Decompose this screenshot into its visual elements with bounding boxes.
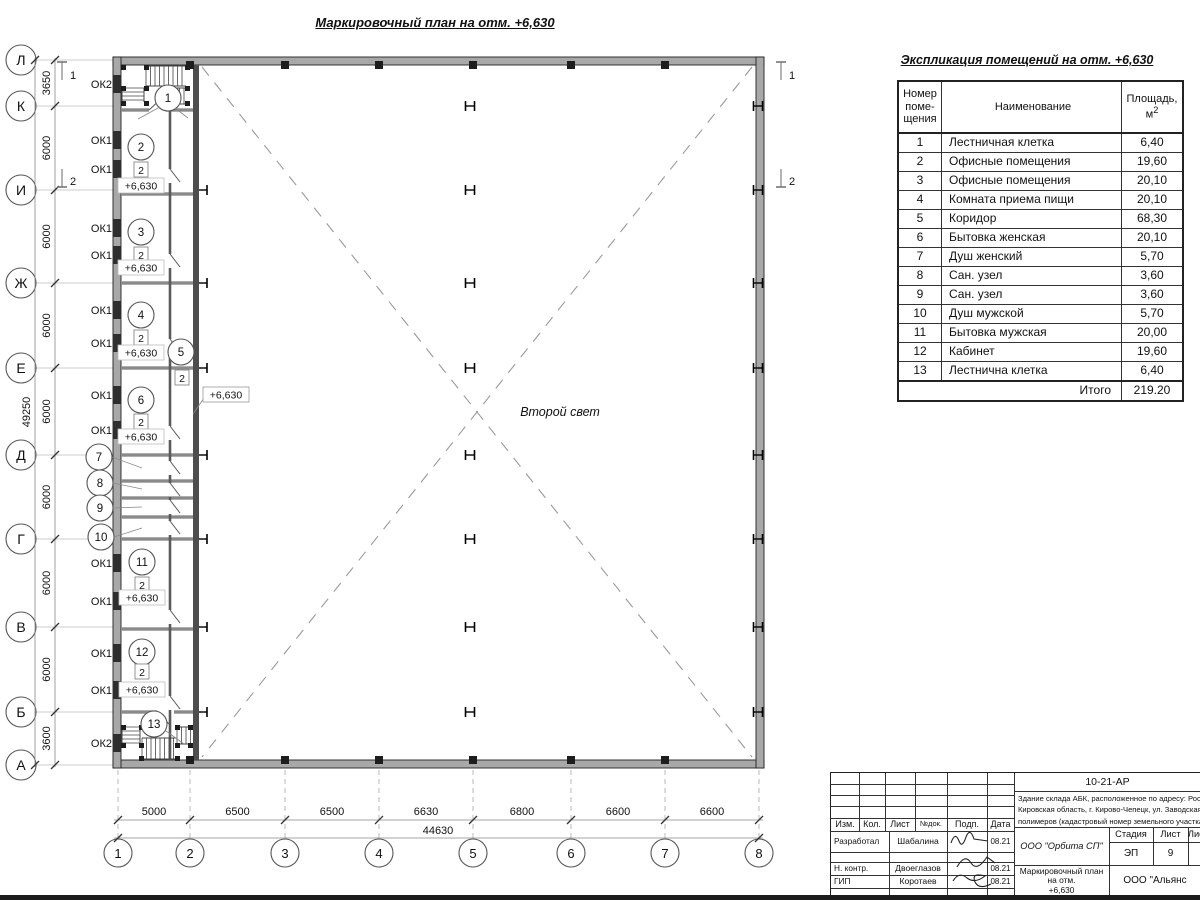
schedule-row: 2Офисные помещения19,60 bbox=[898, 153, 1183, 172]
schedule-cell-name: Сан. узел bbox=[942, 267, 1122, 286]
schedule-cell-area: 20,10 bbox=[1122, 191, 1184, 210]
window-tag: ОК1 bbox=[91, 305, 112, 317]
schedule-cell-num: 10 bbox=[898, 305, 942, 324]
schedule-cell-area: 5,70 bbox=[1122, 248, 1184, 267]
window-tag: ОК1 bbox=[91, 164, 112, 176]
tb-sheets-value: 1 bbox=[1188, 842, 1200, 865]
row-dimension-label: 6000 bbox=[41, 571, 53, 595]
window-tag: ОК1 bbox=[91, 596, 112, 608]
stair-column-mark bbox=[175, 756, 180, 761]
stair-column-mark bbox=[121, 101, 126, 106]
schedule-cell-num: 4 bbox=[898, 191, 942, 210]
row-axis-label: К bbox=[17, 98, 26, 114]
col-dimension-label: 6600 bbox=[606, 806, 630, 818]
room-number: 7 bbox=[96, 452, 102, 464]
window-tag: ОК1 bbox=[91, 338, 112, 350]
schedule-cell-area: 6,40 bbox=[1122, 133, 1184, 153]
schedule-cell-num: 2 bbox=[898, 153, 942, 172]
window-tag: ОК1 bbox=[91, 558, 112, 570]
window-tag: ОК1 bbox=[91, 390, 112, 402]
schedule-cell-name: Лестнична клетка bbox=[942, 362, 1122, 382]
tb-sheet-value: 9 bbox=[1153, 842, 1188, 865]
schedule-cell-name: Лестничная клетка bbox=[942, 133, 1122, 153]
window-opening bbox=[114, 160, 121, 178]
tb-name-ncontr: Двоеглазов bbox=[889, 862, 947, 875]
room-number: 13 bbox=[148, 719, 161, 731]
tb-stage-label: Стадия bbox=[1109, 827, 1153, 842]
col-total-dimension: 44630 bbox=[423, 825, 454, 837]
section-mark: 1 bbox=[789, 70, 795, 82]
schedule-cell-num: 9 bbox=[898, 286, 942, 305]
col-dimension-label: 5000 bbox=[142, 806, 166, 818]
col-dimension-label: 6500 bbox=[320, 806, 344, 818]
partition-wall bbox=[121, 627, 193, 630]
room-number: 1 bbox=[165, 93, 171, 105]
schedule-cell-num: 8 bbox=[898, 267, 942, 286]
schedule-cell-area: 20,10 bbox=[1122, 172, 1184, 191]
floor-type-mark: 2 bbox=[139, 667, 145, 679]
door-leaf bbox=[170, 696, 180, 709]
col-axis-label: 6 bbox=[567, 846, 574, 861]
tb-sheet-label: Лист bbox=[1153, 827, 1188, 842]
row-axis-label: И bbox=[16, 182, 26, 198]
schedule-cell-area: 3,60 bbox=[1122, 286, 1184, 305]
window-tag: ОК1 bbox=[91, 135, 112, 147]
row-dimension-label: 3650 bbox=[41, 71, 53, 95]
tb-stage-value: ЭП bbox=[1109, 842, 1153, 865]
stair-column-mark bbox=[175, 725, 180, 730]
schedule-cell-name: Кабинет bbox=[942, 343, 1122, 362]
window-tag: ОК1 bbox=[91, 685, 112, 697]
schedule-title: Экспликация помещений на отм. +6,630 bbox=[895, 53, 1159, 67]
partition-wall bbox=[121, 453, 193, 456]
partition-wall bbox=[121, 366, 193, 369]
door-leaf bbox=[170, 610, 180, 623]
door-leaf bbox=[170, 169, 180, 182]
stair-column-mark bbox=[121, 86, 126, 91]
schedule-row: 10Душ мужской5,70 bbox=[898, 305, 1183, 324]
tb-description-line3: полимеров (кадастровый номер земельного … bbox=[1018, 816, 1200, 827]
stair-column-mark bbox=[175, 743, 180, 748]
partition-wall bbox=[121, 515, 193, 518]
tb-org: ООО "Орбита СП" bbox=[1014, 827, 1109, 865]
schedule-cell-num: 12 bbox=[898, 343, 942, 362]
row-axis-label: А bbox=[16, 757, 26, 773]
schedule-row: 13Лестнична клетка6,40 bbox=[898, 362, 1183, 382]
column-mark bbox=[661, 756, 669, 764]
column-mark bbox=[661, 61, 669, 69]
door-leaf bbox=[170, 500, 180, 513]
schedule-col-number: Номер поме- щения bbox=[898, 81, 942, 133]
window-tag: ОК1 bbox=[91, 223, 112, 235]
tb-description-line2: Кировская область, г. Кирово-Чепецк, ул.… bbox=[1018, 804, 1200, 815]
tb-org2: ООО "Альянс bbox=[1109, 865, 1200, 897]
elevation-label: +6,630 bbox=[210, 390, 243, 402]
window-opening bbox=[114, 734, 121, 752]
row-total-dimension: 49250 bbox=[21, 397, 33, 428]
section-mark: 2 bbox=[70, 176, 76, 188]
tb-name-gip: Коротаев bbox=[889, 875, 947, 888]
schedule-cell-name: Комната приема пищи bbox=[942, 191, 1122, 210]
room-number: 2 bbox=[138, 142, 144, 154]
col-dimension-label: 6500 bbox=[225, 806, 249, 818]
partition-wall bbox=[121, 479, 193, 482]
room-number: 10 bbox=[95, 532, 108, 544]
schedule-col-area: Площадь, м2 bbox=[1122, 81, 1184, 133]
stair-column-mark bbox=[188, 743, 193, 748]
stair-column-mark bbox=[144, 86, 149, 91]
col-axis-label: 3 bbox=[281, 846, 288, 861]
schedule-col-name: Наименование bbox=[942, 81, 1122, 133]
stair-column-mark bbox=[185, 86, 190, 91]
elevation-label: +6,630 bbox=[125, 432, 158, 444]
schedule-cell-name: Офисные помещения bbox=[942, 172, 1122, 191]
stair-column-mark bbox=[139, 743, 144, 748]
schedule-cell-area: 19,60 bbox=[1122, 343, 1184, 362]
schedule-cell-num: 5 bbox=[898, 210, 942, 229]
schedule-row: 4Комната приема пищи20,10 bbox=[898, 191, 1183, 210]
schedule-total-label: Итого bbox=[898, 381, 1122, 401]
room-number: 5 bbox=[178, 347, 184, 359]
row-axis-label: Б bbox=[16, 704, 25, 720]
tb-col-list: Лист bbox=[885, 818, 915, 831]
schedule-total-value: 219.20 bbox=[1122, 381, 1184, 401]
row-dimension-label: 6000 bbox=[41, 485, 53, 509]
schedule-cell-area: 20,00 bbox=[1122, 324, 1184, 343]
room-number: 4 bbox=[138, 310, 145, 322]
tb-sheets-label: Листов bbox=[1188, 827, 1200, 842]
signature-strokes bbox=[943, 827, 1015, 893]
col-dimension-label: 6600 bbox=[700, 806, 724, 818]
schedule-total-row: Итого 219.20 bbox=[898, 381, 1183, 401]
room-schedule-table: Номер поме- щения Наименование Площадь, … bbox=[897, 80, 1184, 402]
schedule-cell-area: 6,40 bbox=[1122, 362, 1184, 382]
room-number: 8 bbox=[97, 478, 103, 490]
column-mark bbox=[567, 756, 575, 764]
schedule-cell-num: 11 bbox=[898, 324, 942, 343]
stair-column-mark bbox=[139, 756, 144, 761]
room-number: 3 bbox=[138, 227, 144, 239]
row-dimension-label: 6000 bbox=[41, 313, 53, 337]
col-axis-label: 7 bbox=[661, 846, 668, 861]
schedule-row: 11Бытовка мужская20,00 bbox=[898, 324, 1183, 343]
stair-column-mark bbox=[185, 65, 190, 70]
row-dimension-label: 3600 bbox=[41, 726, 53, 750]
row-axis-label: Г bbox=[17, 531, 25, 547]
schedule-cell-area: 5,70 bbox=[1122, 305, 1184, 324]
partition-wall bbox=[121, 537, 193, 540]
schedule-cell-num: 1 bbox=[898, 133, 942, 153]
tb-description-line1: Здание склада АБК, расположенное по адре… bbox=[1018, 793, 1200, 804]
schedule-cell-num: 13 bbox=[898, 362, 942, 382]
schedule-cell-num: 6 bbox=[898, 229, 942, 248]
row-axis-label: Ж bbox=[15, 275, 28, 291]
schedule-cell-area: 20,10 bbox=[1122, 229, 1184, 248]
schedule-row: 1Лестничная клетка6,40 bbox=[898, 133, 1183, 153]
floor-type-mark: 2 bbox=[138, 417, 144, 429]
tb-col-kol: Кол. bbox=[859, 818, 885, 831]
schedule-cell-name: Бытовка мужская bbox=[942, 324, 1122, 343]
schedule-cell-num: 3 bbox=[898, 172, 942, 191]
door-leaf bbox=[170, 483, 180, 496]
stair-column-mark bbox=[121, 725, 126, 730]
drawing-sheet: Маркировочный план на отм. +6,630 ЛКИЖЕД… bbox=[0, 0, 1200, 900]
stair-column-mark bbox=[121, 65, 126, 70]
row-axis-label: В bbox=[16, 619, 25, 635]
column-mark bbox=[567, 61, 575, 69]
column-mark bbox=[375, 61, 383, 69]
partition-wall bbox=[121, 496, 193, 499]
window-opening bbox=[114, 131, 121, 149]
stair-column-mark bbox=[121, 743, 126, 748]
tb-description: Здание склада АБК, расположенное по адре… bbox=[1018, 793, 1200, 826]
door-leaf bbox=[170, 521, 180, 534]
window-opening bbox=[114, 301, 121, 319]
tb-drawing-title: Маркировочный план на отм. +6,630 bbox=[1014, 865, 1109, 897]
schedule-cell-name: Коридор bbox=[942, 210, 1122, 229]
window-opening bbox=[114, 554, 121, 572]
floor-type-mark: 2 bbox=[179, 373, 185, 385]
section-mark: 2 bbox=[789, 176, 795, 188]
schedule-cell-name: Душ женский bbox=[942, 248, 1122, 267]
elevation-label: +6,630 bbox=[125, 263, 158, 275]
elevation-label: +6,630 bbox=[126, 593, 159, 605]
schedule-row: 6Бытовка женская20,10 bbox=[898, 229, 1183, 248]
column-mark bbox=[469, 756, 477, 764]
row-dimension-label: 6000 bbox=[41, 136, 53, 160]
row-dimension-label: 6000 bbox=[41, 399, 53, 423]
schedule-cell-area: 3,60 bbox=[1122, 267, 1184, 286]
column-mark bbox=[469, 61, 477, 69]
window-tag: ОК1 bbox=[91, 250, 112, 262]
window-opening bbox=[114, 644, 121, 662]
window-opening bbox=[114, 219, 121, 237]
room-number: 6 bbox=[138, 395, 144, 407]
row-axis-label: Е bbox=[16, 360, 25, 376]
tb-drawing-title-line1: Маркировочный план на отм. bbox=[1014, 867, 1109, 886]
window-tag: ОК1 bbox=[91, 648, 112, 660]
row-dimension-label: 6000 bbox=[41, 224, 53, 248]
elevation-label: +6,630 bbox=[126, 685, 159, 697]
door-leaf bbox=[170, 254, 180, 267]
schedule-cell-name: Душ мужской bbox=[942, 305, 1122, 324]
col-axis-label: 5 bbox=[469, 846, 476, 861]
schedule-cell-name: Офисные помещения bbox=[942, 153, 1122, 172]
schedule-row: 9Сан. узел3,60 bbox=[898, 286, 1183, 305]
window-opening bbox=[114, 75, 121, 93]
schedule-row: 12Кабинет19,60 bbox=[898, 343, 1183, 362]
floor-type-mark: 2 bbox=[138, 165, 144, 177]
schedule-cell-name: Бытовка женская bbox=[942, 229, 1122, 248]
col-axis-label: 1 bbox=[114, 846, 121, 861]
schedule-row: 8Сан. узел3,60 bbox=[898, 267, 1183, 286]
row-axis-label: Д bbox=[16, 447, 26, 463]
elevation-label: +6,630 bbox=[125, 181, 158, 193]
tb-doc-number: 10-21-АР bbox=[1014, 773, 1200, 791]
sheet-bottom-edge bbox=[0, 895, 1200, 900]
col-dimension-label: 6800 bbox=[510, 806, 534, 818]
schedule-cell-area: 19,60 bbox=[1122, 153, 1184, 172]
column-mark bbox=[281, 756, 289, 764]
room-number: 11 bbox=[136, 557, 148, 569]
tb-role-developer: Разработал bbox=[831, 831, 892, 852]
row-axis-label: Л bbox=[16, 52, 25, 68]
tb-role-ncontr: Н. контр. bbox=[831, 862, 892, 875]
schedule-row: 7Душ женский5,70 bbox=[898, 248, 1183, 267]
title-block: Изм. Кол. Лист №док. Подп. Дата Разработ… bbox=[830, 772, 1200, 898]
elevation-label: +6,630 bbox=[125, 348, 158, 360]
schedule-cell-num: 7 bbox=[898, 248, 942, 267]
col-axis-label: 4 bbox=[375, 846, 382, 861]
tb-col-izm: Изм. bbox=[831, 818, 859, 831]
partition-wall bbox=[121, 281, 193, 284]
schedule-row: 5Коридор68,30 bbox=[898, 210, 1183, 229]
second-light-label: Второй свет bbox=[520, 405, 600, 419]
col-dimension-label: 6630 bbox=[414, 806, 438, 818]
stair-column-mark bbox=[188, 725, 193, 730]
col-axis-label: 2 bbox=[186, 846, 193, 861]
door-leaf bbox=[170, 461, 180, 474]
schedule-cell-area: 68,30 bbox=[1122, 210, 1184, 229]
floor-type-mark: 2 bbox=[138, 333, 144, 345]
section-mark: 1 bbox=[70, 70, 76, 82]
column-mark bbox=[281, 61, 289, 69]
col-axis-label: 8 bbox=[755, 846, 762, 861]
tb-role-gip: ГИП bbox=[831, 875, 892, 888]
column-mark bbox=[375, 756, 383, 764]
column-mark bbox=[186, 756, 194, 764]
area-header-sup: 2 bbox=[1153, 105, 1158, 115]
window-opening bbox=[114, 386, 121, 404]
window-tag: ОК1 bbox=[91, 425, 112, 437]
window-tag: ОК2 bbox=[91, 79, 112, 91]
wall-right bbox=[756, 57, 764, 768]
tb-name-developer: Шабалина bbox=[889, 831, 947, 852]
door-leaf bbox=[170, 426, 180, 439]
schedule-row: 3Офисные помещения20,10 bbox=[898, 172, 1183, 191]
stair-column-mark bbox=[144, 65, 149, 70]
schedule-cell-name: Сан. узел bbox=[942, 286, 1122, 305]
window-tag: ОК2 bbox=[91, 738, 112, 750]
row-dimension-label: 6000 bbox=[41, 657, 53, 681]
area-header-line1: Площадь, bbox=[1127, 93, 1178, 105]
room-number: 9 bbox=[97, 503, 103, 515]
room-number: 12 bbox=[136, 647, 149, 659]
stair-column-mark bbox=[144, 101, 149, 106]
stair-column-mark bbox=[185, 101, 190, 106]
